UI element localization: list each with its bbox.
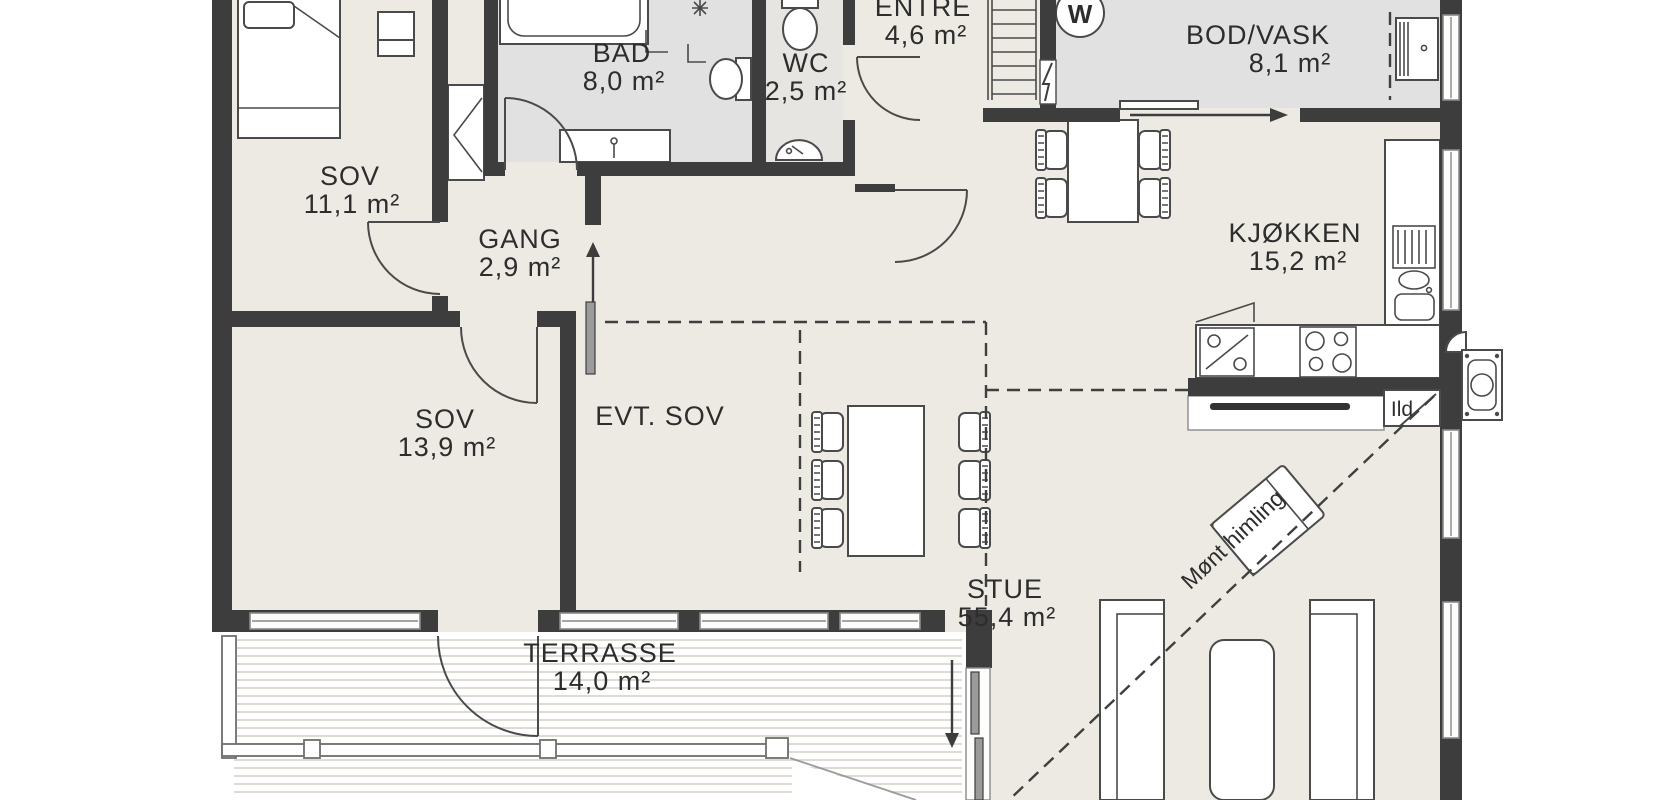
room-area-entre: 4,6 m² [885,20,968,50]
room-area-gang: 2,9 m² [479,252,562,282]
sofa-right [1310,600,1374,800]
electric-panel [1040,60,1056,104]
room-area-stue: 55,4 m² [958,602,1057,632]
floor-plan-svg: W [0,0,1670,800]
washing-machine: W [1056,0,1104,37]
coffee-table [1210,640,1274,800]
room-area-sov2: 13,9 m² [398,432,497,462]
room-label-bad: BAD [593,38,652,68]
fireplace-recess: Ild [1384,390,1440,426]
room-area-bad: 8,0 m² [583,66,666,96]
stue-bench [1188,396,1384,430]
room-label-stue: STUE [967,574,1043,604]
room-area-terrasse: 14,0 m² [553,666,652,696]
wardrobe [448,85,484,180]
room-area-sov1: 11,1 m² [304,189,401,219]
dining-table-set [812,406,990,556]
terrace-railing-left [222,636,236,758]
room-label-entre: ENTRE [875,0,972,22]
room-area-wc: 2,5 m² [765,76,848,106]
room-area-bod: 8,1 m² [1249,48,1332,78]
bed-single [238,0,340,138]
washer-label: W [1068,0,1093,29]
room-label-kjokken: KJØKKEN [1228,218,1361,248]
room-label-evtsov: EVT. SOV [595,401,725,431]
sofa-left [1100,600,1164,800]
freezer [1396,18,1438,80]
room-label-sov1: SOV [320,161,380,191]
desk [378,12,414,56]
room-label-terrasse: TERRASSE [523,638,677,668]
room-label-bod: BOD/VASK [1186,20,1330,50]
toilet-wc [782,0,818,50]
kitchen-counter-right [1385,140,1440,325]
room-label-gang: GANG [478,224,562,254]
toilet-bath [710,58,751,100]
room-label-sov2: SOV [415,404,475,434]
floor-plan-page: W [0,0,1670,800]
room-area-kjokken: 15,2 m² [1249,246,1348,276]
room-label-wc: WC [783,48,830,78]
